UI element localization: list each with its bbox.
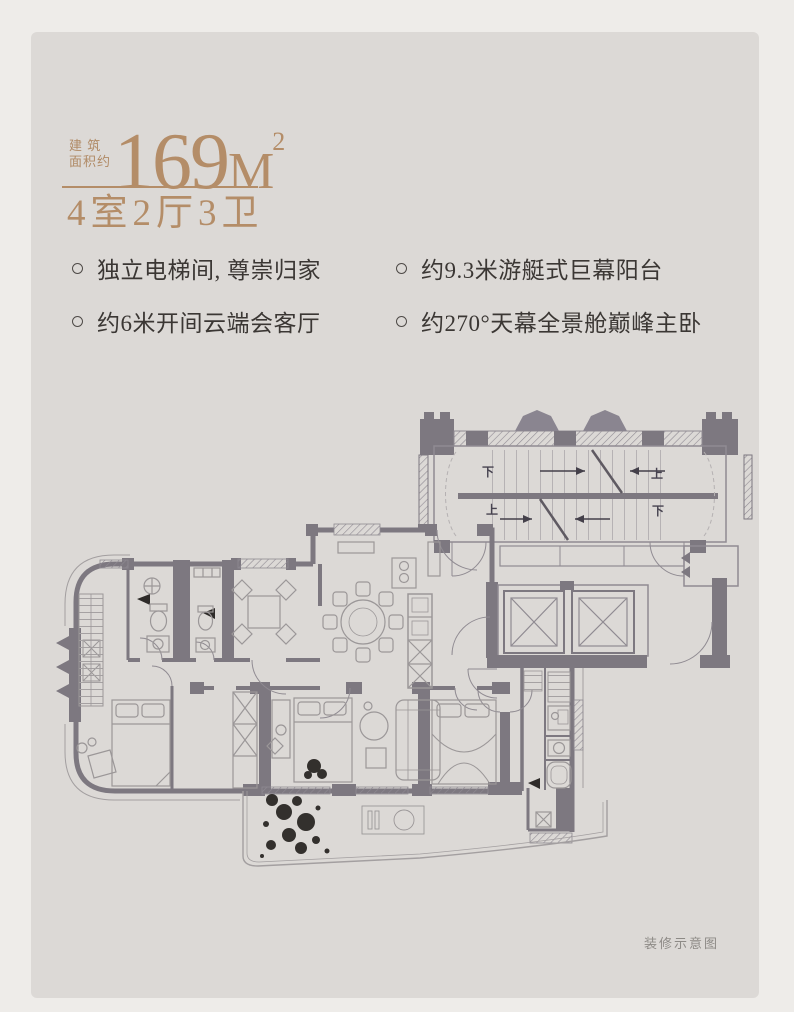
poster-page: { "page": { "background": "#eeece9", "ca…: [0, 0, 794, 1012]
bedroom-left: [77, 594, 170, 786]
stair-label-down-2: 下: [652, 505, 664, 517]
stair-label-up-2: 上: [486, 504, 498, 516]
hall-closets: [233, 692, 257, 788]
dining-area: [323, 542, 440, 688]
staircase-block: [419, 410, 752, 668]
plants: [260, 794, 330, 858]
plan-caption: 装修示意图: [644, 933, 719, 952]
stair-label-down-1: 下: [482, 466, 494, 478]
apartment-walls: [65, 524, 583, 843]
floor-plan: [0, 0, 794, 1012]
bathroom-1: [144, 578, 169, 652]
bedroom-master: [432, 700, 496, 784]
bathroom-2: [194, 568, 220, 652]
stair-label-up-1: 上: [651, 468, 663, 480]
study-room: [232, 580, 296, 644]
elevator-block: [468, 581, 730, 698]
